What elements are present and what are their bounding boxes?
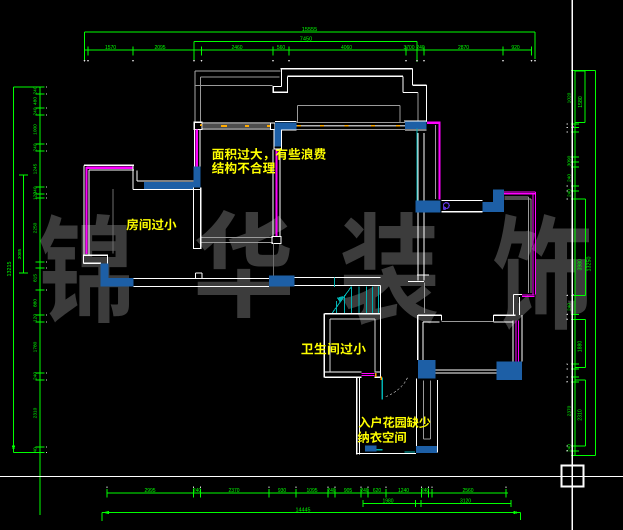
svg-text:3980: 3980 xyxy=(578,259,584,271)
svg-text:480: 480 xyxy=(33,97,39,105)
svg-text:40: 40 xyxy=(33,447,39,453)
svg-text:3090: 3090 xyxy=(566,155,572,166)
svg-text:880: 880 xyxy=(33,299,39,307)
svg-text:240: 240 xyxy=(193,488,202,494)
svg-text:620: 620 xyxy=(373,488,382,494)
svg-text:1240: 1240 xyxy=(398,488,409,494)
svg-text:920: 920 xyxy=(511,45,520,51)
svg-text:2870: 2870 xyxy=(458,45,469,51)
svg-text:1980: 1980 xyxy=(382,499,393,505)
svg-text:240: 240 xyxy=(566,303,572,311)
svg-text:2460: 2460 xyxy=(231,45,242,51)
svg-text:1780: 1780 xyxy=(33,341,39,352)
svg-text:2995: 2995 xyxy=(144,488,155,494)
svg-text:240: 240 xyxy=(421,488,430,494)
svg-text:240: 240 xyxy=(566,174,572,182)
svg-text:15555: 15555 xyxy=(302,27,318,33)
svg-text:240: 240 xyxy=(360,488,369,494)
svg-text:14445: 14445 xyxy=(296,508,311,514)
svg-text:1095: 1095 xyxy=(306,488,317,494)
svg-text:2370: 2370 xyxy=(228,488,239,494)
svg-text:930: 930 xyxy=(278,488,287,494)
svg-text:2250: 2250 xyxy=(33,222,39,233)
svg-text:2310: 2310 xyxy=(33,407,39,418)
svg-text:1580: 1580 xyxy=(578,96,584,108)
svg-text:240: 240 xyxy=(33,143,39,151)
svg-text:240: 240 xyxy=(33,107,39,115)
svg-text:1020: 1020 xyxy=(566,92,572,103)
svg-text:4060: 4060 xyxy=(341,45,352,51)
svg-text:560: 560 xyxy=(277,45,286,51)
svg-text:2095: 2095 xyxy=(154,45,165,51)
svg-text:1245: 1245 xyxy=(33,163,39,174)
svg-text:120: 120 xyxy=(33,314,39,322)
svg-text:13250: 13250 xyxy=(587,257,593,272)
svg-text:815: 815 xyxy=(33,274,39,282)
svg-text:3700: 3700 xyxy=(403,45,414,51)
svg-text:3085: 3085 xyxy=(17,248,23,259)
svg-text:905: 905 xyxy=(344,488,353,494)
svg-text:1880: 1880 xyxy=(578,341,584,353)
svg-text:1570: 1570 xyxy=(105,45,116,51)
svg-text:240: 240 xyxy=(416,45,425,51)
svg-text:3120: 3120 xyxy=(460,499,471,505)
svg-text:240: 240 xyxy=(33,86,39,94)
svg-text:240: 240 xyxy=(327,488,336,494)
svg-text:240: 240 xyxy=(566,189,572,197)
svg-text:2370: 2370 xyxy=(566,405,572,416)
svg-text:1000: 1000 xyxy=(33,124,39,135)
svg-text:13215: 13215 xyxy=(7,262,13,277)
svg-text:7450: 7450 xyxy=(300,37,312,43)
svg-text:2560: 2560 xyxy=(462,488,473,494)
svg-text:2310: 2310 xyxy=(578,409,584,421)
svg-text:120: 120 xyxy=(33,192,39,200)
svg-text:240: 240 xyxy=(33,372,39,380)
